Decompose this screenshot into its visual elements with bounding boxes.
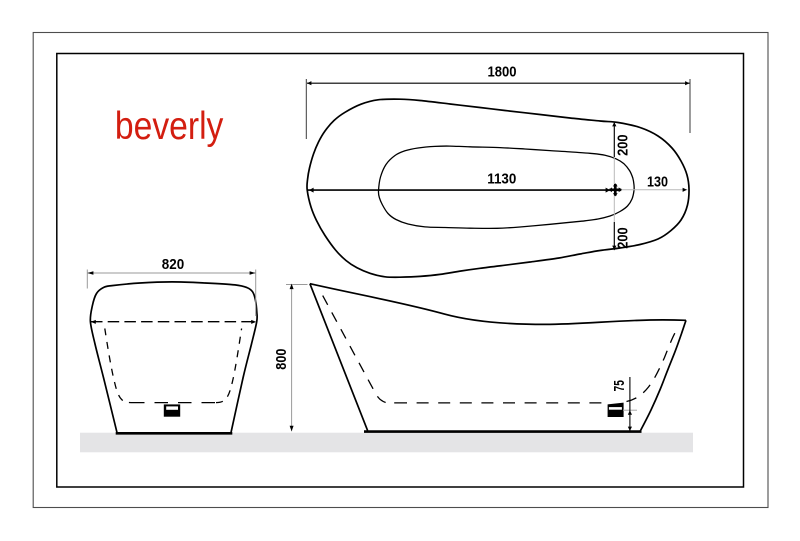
svg-text:200: 200 bbox=[615, 227, 632, 248]
svg-text:820: 820 bbox=[162, 256, 184, 273]
svg-text:beverly: beverly bbox=[115, 105, 224, 148]
svg-text:130: 130 bbox=[647, 174, 668, 191]
svg-text:1800: 1800 bbox=[488, 64, 517, 81]
svg-text:1130: 1130 bbox=[487, 171, 516, 188]
svg-text:75: 75 bbox=[611, 380, 628, 391]
svg-text:200: 200 bbox=[615, 135, 632, 156]
svg-text:800: 800 bbox=[273, 349, 290, 370]
